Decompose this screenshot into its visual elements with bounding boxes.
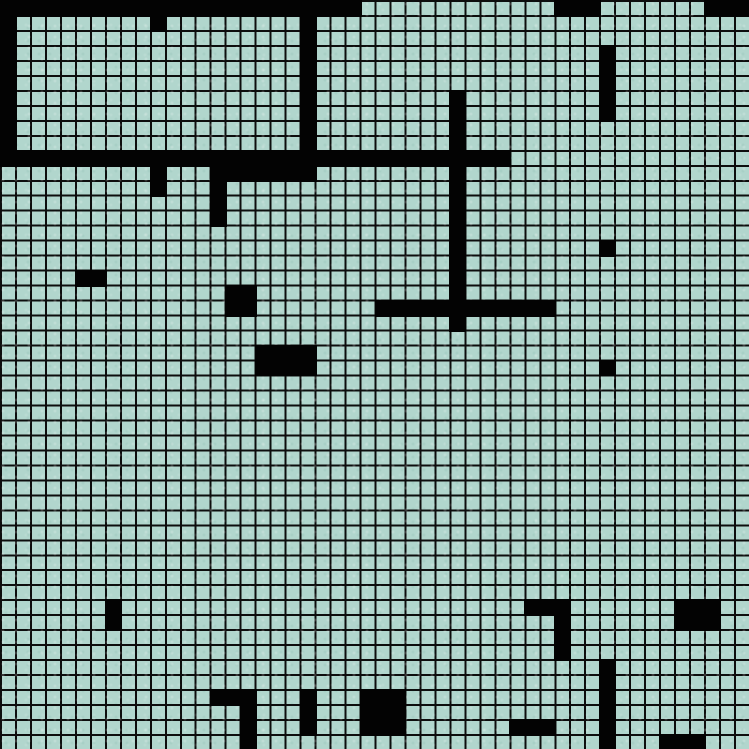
wall-block	[599, 45, 616, 122]
maze-grid[interactable]	[0, 0, 749, 749]
wall-block	[509, 719, 556, 736]
wall-block	[150, 15, 167, 32]
wall-block	[300, 689, 317, 736]
wall-block	[150, 165, 167, 197]
wall-block	[360, 689, 407, 736]
wall-block	[449, 90, 466, 332]
wall-block	[255, 345, 317, 377]
wall-block	[599, 360, 616, 377]
wall-block	[659, 734, 706, 749]
maze-stage	[0, 0, 749, 749]
wall-block	[300, 0, 317, 167]
wall-block	[554, 599, 571, 661]
wall-block	[674, 599, 721, 631]
wall-block	[75, 270, 107, 287]
wall-block	[0, 0, 17, 167]
wall-block	[375, 300, 557, 317]
wall-block	[225, 165, 317, 182]
wall-block	[240, 689, 257, 749]
wall-block	[105, 599, 122, 631]
wall-block	[599, 240, 616, 257]
wall-block	[599, 659, 616, 749]
wall-block	[554, 0, 601, 17]
wall-block	[704, 0, 749, 17]
wall-block	[225, 285, 257, 317]
